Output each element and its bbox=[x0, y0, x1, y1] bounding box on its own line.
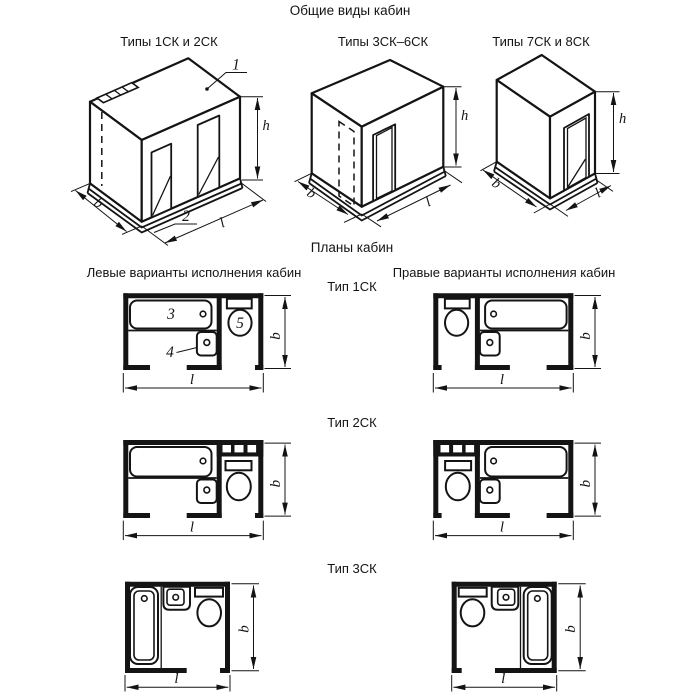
isometric-view-1sk-2sk: 1 2 b l h bbox=[71, 57, 270, 246]
isometric-view-3sk-6sk: b l h bbox=[295, 60, 469, 227]
door-opening bbox=[564, 114, 589, 191]
callout-toilet: 5 bbox=[236, 315, 244, 332]
svg-text:b: b bbox=[268, 479, 284, 487]
svg-text:b: b bbox=[578, 332, 594, 340]
plan-3sk-right: b l bbox=[452, 582, 586, 692]
svg-text:b: b bbox=[237, 625, 253, 633]
svg-text:4: 4 bbox=[166, 344, 174, 361]
callout-bathtub: 3 bbox=[166, 306, 175, 323]
plan-2sk-left: b l bbox=[123, 440, 291, 540]
svg-text:h: h bbox=[263, 118, 270, 134]
cabins-diagram: Общие виды кабин Типы 1СК и 2СК Типы 3СК… bbox=[0, 0, 700, 700]
svg-text:1: 1 bbox=[232, 57, 240, 74]
view3-label: Типы 7СК и 8СК bbox=[492, 34, 590, 49]
dim-h: h bbox=[444, 87, 468, 167]
svg-text:h: h bbox=[461, 108, 468, 124]
type2-label: Тип 2СК bbox=[327, 415, 377, 430]
svg-text:l: l bbox=[423, 194, 434, 210]
svg-text:l: l bbox=[190, 520, 194, 536]
type3-label: Тип 3СК bbox=[327, 561, 377, 576]
left-column-label: Левые варианты исполнения кабин bbox=[87, 265, 302, 280]
svg-text:l: l bbox=[500, 520, 504, 536]
callout-washbasin: 4 bbox=[166, 344, 197, 361]
svg-text:b: b bbox=[578, 479, 594, 487]
page-title: Общие виды кабин bbox=[290, 3, 411, 18]
svg-text:h: h bbox=[619, 111, 626, 127]
svg-text:l: l bbox=[501, 671, 505, 687]
svg-text:b: b bbox=[489, 175, 504, 192]
svg-text:l: l bbox=[592, 186, 603, 202]
standard-figure-page: Общие виды кабин Типы 1СК и 2СК Типы 3СК… bbox=[0, 0, 700, 700]
plan-3sk-left: b l bbox=[125, 582, 259, 692]
plan-2sk-right: b l bbox=[433, 440, 601, 540]
dim-h: h bbox=[241, 97, 270, 180]
view1-label: Типы 1СК и 2СК bbox=[120, 34, 218, 49]
plan-1sk-left: 3 4 5 b l bbox=[123, 293, 291, 392]
type1-label: Тип 1СК bbox=[327, 279, 377, 294]
svg-text:l: l bbox=[190, 372, 194, 388]
plans-title: Планы кабин bbox=[311, 240, 393, 255]
svg-text:2: 2 bbox=[182, 208, 190, 225]
right-column-label: Правые варианты исполнения кабин bbox=[393, 265, 616, 280]
isometric-view-7sk-8sk: b l h bbox=[481, 55, 627, 216]
door-opening bbox=[373, 124, 395, 201]
svg-text:b: b bbox=[563, 625, 579, 633]
svg-text:l: l bbox=[500, 372, 504, 388]
plan-1sk-right: b l bbox=[433, 293, 601, 392]
svg-text:l: l bbox=[174, 671, 178, 687]
dim-h: h bbox=[596, 92, 626, 174]
svg-text:b: b bbox=[268, 332, 284, 340]
view2-label: Типы 3СК–6СК bbox=[338, 34, 429, 49]
